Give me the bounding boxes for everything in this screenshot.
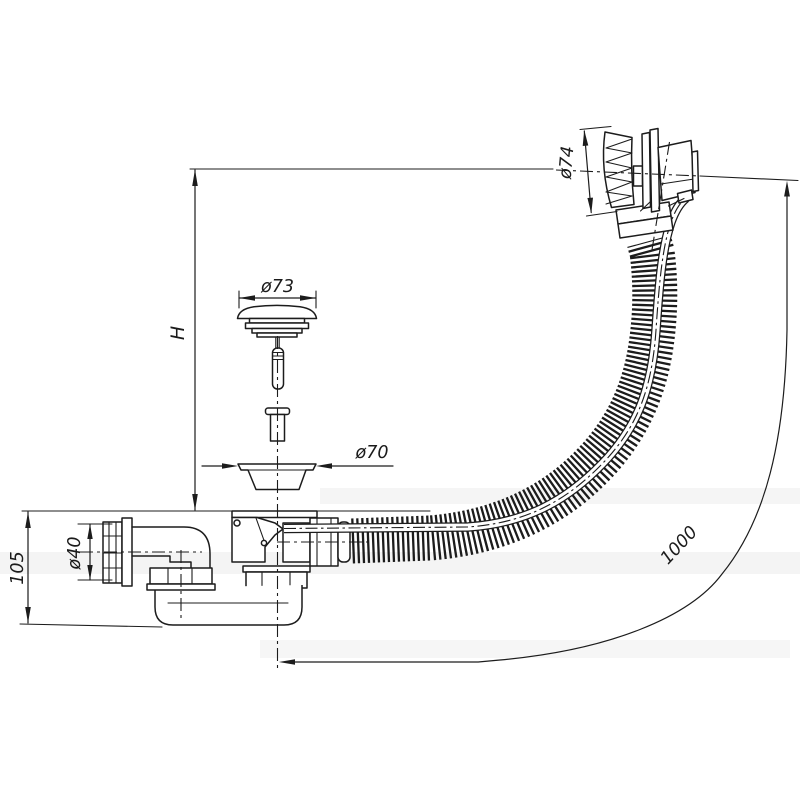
body-side-plate [692,151,699,192]
tee-screw-hole [261,540,266,545]
cover-plate [650,129,660,213]
dim-label-plug-diameter: ø73 [260,277,294,297]
drain-trap [155,585,302,625]
tee-washer [243,566,310,572]
tee-screw-hole [234,520,240,526]
dim-label-height: H [167,326,189,340]
plug-dome [238,305,317,318]
control-cable [284,198,686,529]
dim-label-flange-diameter: ø70 [355,443,389,463]
dimension-105: 105 [8,512,31,623]
dim-label-trap-height: 105 [8,551,28,584]
dimension-1000: 1000 [279,181,790,665]
dimension-73: ø73 [239,277,316,308]
technical-drawing-bath-waste: H 105 ø40 ø73 ø70 ø74 [0,0,800,800]
cover-plate [642,133,651,209]
waste-tee [232,511,350,588]
knob-hub [634,166,643,186]
drawing-svg: H 105 ø40 ø73 ø70 ø74 [0,0,800,800]
overflow-head [603,129,698,213]
dim-label-outlet-diameter: ø40 [65,537,85,571]
dim-label-overflow-diameter: ø74 [556,145,579,181]
tee-top-flange [232,511,317,518]
